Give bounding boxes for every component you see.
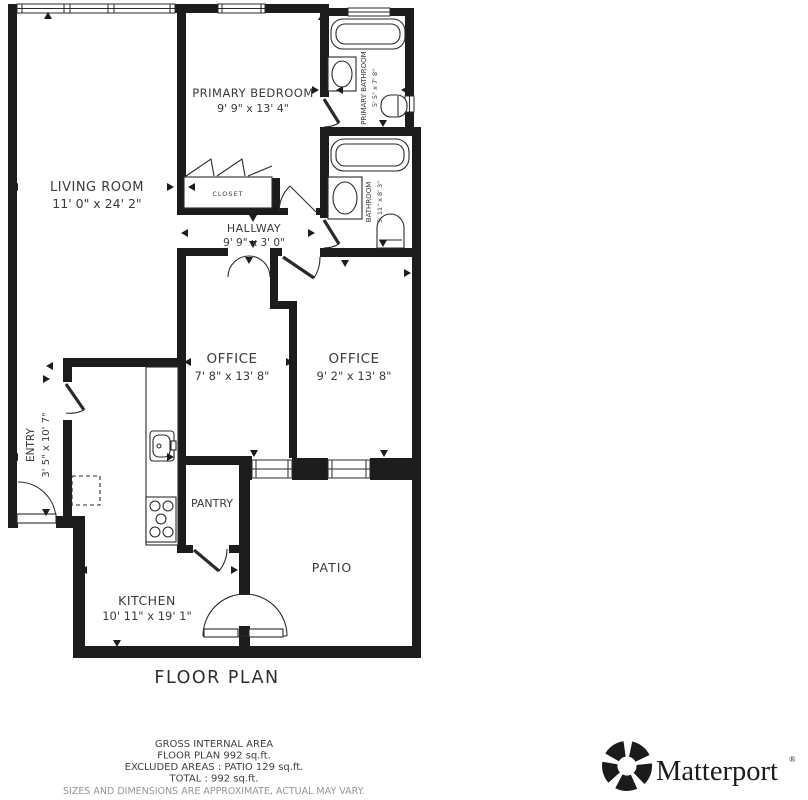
floor-plan-page: LIVING ROOM 11' 0" x 24' 2" PRIMARY BEDR… xyxy=(0,0,808,800)
entry-dims: 3' 5" x 10' 7" xyxy=(41,412,52,477)
patio-window-right xyxy=(328,460,370,478)
office-right-label: OFFICE xyxy=(328,351,379,367)
primary-bedroom-dims: 9' 9" x 13' 4" xyxy=(217,102,289,115)
wall-segment xyxy=(405,8,414,96)
primary-bathroom-top-window xyxy=(348,8,390,16)
wall-segment xyxy=(292,458,328,480)
dimension-markers xyxy=(11,12,419,647)
primary-bathroom-label: PRIMARY BATHROOM xyxy=(360,51,368,124)
wall-segment xyxy=(412,136,421,658)
excluded-areas-line: EXCLUDED AREAS : PATIO 129 sq.ft. xyxy=(125,762,304,773)
kitchen-stove xyxy=(146,497,176,542)
bathroom-dims: 5' 11" x 8' 3" xyxy=(376,181,384,223)
wall-segment xyxy=(270,248,282,256)
wall-segment xyxy=(56,516,75,528)
office-right-dims: 9' 2" x 13' 8" xyxy=(317,369,392,383)
wall-segment xyxy=(63,358,72,382)
matterport-logo: Matterport ® xyxy=(602,741,796,791)
primary-bathroom-sink xyxy=(328,57,356,91)
disclaimer-text: SIZES AND DIMENSIONS ARE APPROXIMATE, AC… xyxy=(63,786,364,797)
wall-segment xyxy=(177,208,288,215)
office-left-label: OFFICE xyxy=(206,351,257,367)
wall-segment xyxy=(239,646,421,658)
wall-segment xyxy=(239,456,250,595)
office-right-door xyxy=(283,257,320,278)
area-summary: GROSS INTERNAL AREA FLOOR PLAN 992 sq.ft… xyxy=(125,739,304,785)
patio-window-left xyxy=(252,460,292,478)
bathroom-bathtub xyxy=(331,139,409,171)
wall-segment xyxy=(270,256,278,308)
wall-segment xyxy=(73,646,252,658)
wall-segment xyxy=(272,178,280,209)
matterport-pinwheel-icon xyxy=(602,741,652,791)
bathroom-sink xyxy=(328,177,362,219)
wall-segment xyxy=(8,4,17,528)
bedroom-window xyxy=(218,4,265,13)
registered-trademark-symbol: ® xyxy=(789,754,796,764)
floor-plan-drawing: LIVING ROOM 11' 0" x 24' 2" PRIMARY BEDR… xyxy=(0,0,808,800)
wall-segment xyxy=(320,127,421,136)
hallway-dims: 9' 9" x 3' 0" xyxy=(223,237,285,249)
matterport-wordmark: Matterport xyxy=(656,756,778,787)
closet-label: CLOSET xyxy=(212,190,243,198)
wall-segment xyxy=(177,545,193,553)
closet-bifold-doors xyxy=(186,159,272,176)
hallway-label: HALLWAY xyxy=(227,222,281,235)
wall-segment xyxy=(326,8,348,16)
primary-bathroom-dims: 5' 5" x 7' 8" xyxy=(371,69,379,107)
bathroom-door xyxy=(324,220,339,248)
gross-internal-area-line: GROSS INTERNAL AREA xyxy=(155,739,273,750)
primary-bathroom-door xyxy=(324,99,339,127)
office-left-dims: 7' 8" x 13' 8" xyxy=(195,369,270,383)
wall-segment xyxy=(370,458,421,480)
floor-plan-title: FLOOR PLAN xyxy=(154,668,279,688)
living-room-dims: 11' 0" x 24' 2" xyxy=(52,196,141,211)
entry-label: ENTRY xyxy=(25,427,37,462)
kitchen-label: KITCHEN xyxy=(118,593,176,608)
wall-segment xyxy=(239,626,250,648)
wall-segment xyxy=(265,4,322,13)
pantry-label: PANTRY xyxy=(191,497,233,510)
floor-plan-area-line: FLOOR PLAN 992 sq.ft. xyxy=(157,751,271,762)
kitchen-dims: 10' 11" x 19' 1" xyxy=(102,609,192,623)
wall-segment xyxy=(270,301,297,309)
entry-front-door xyxy=(17,482,56,523)
wall-segment xyxy=(63,358,186,367)
wall-segment xyxy=(289,309,297,458)
wall-segment xyxy=(316,208,329,215)
dimension-arrow-icon xyxy=(11,12,419,647)
primary-bathroom-toilet xyxy=(381,95,407,117)
wall-segment xyxy=(229,545,250,553)
total-area-line: TOTAL : 992 sq.ft. xyxy=(169,774,259,785)
wall-segment xyxy=(73,516,85,658)
living-room-label: LIVING ROOM xyxy=(50,180,144,195)
wall-segment xyxy=(320,248,421,257)
kitchen-appliance-dashed xyxy=(72,476,100,505)
living-room-window xyxy=(17,4,175,13)
entry-kitchen-door xyxy=(66,384,84,413)
pantry-door xyxy=(194,549,227,571)
wall-segment xyxy=(63,420,72,518)
primary-bathroom-bathtub xyxy=(331,19,405,49)
bathroom-label: BATHROOM xyxy=(365,182,373,223)
patio-label: PATIO xyxy=(312,560,352,575)
primary-bedroom-label: PRIMARY BEDROOM xyxy=(192,86,314,100)
